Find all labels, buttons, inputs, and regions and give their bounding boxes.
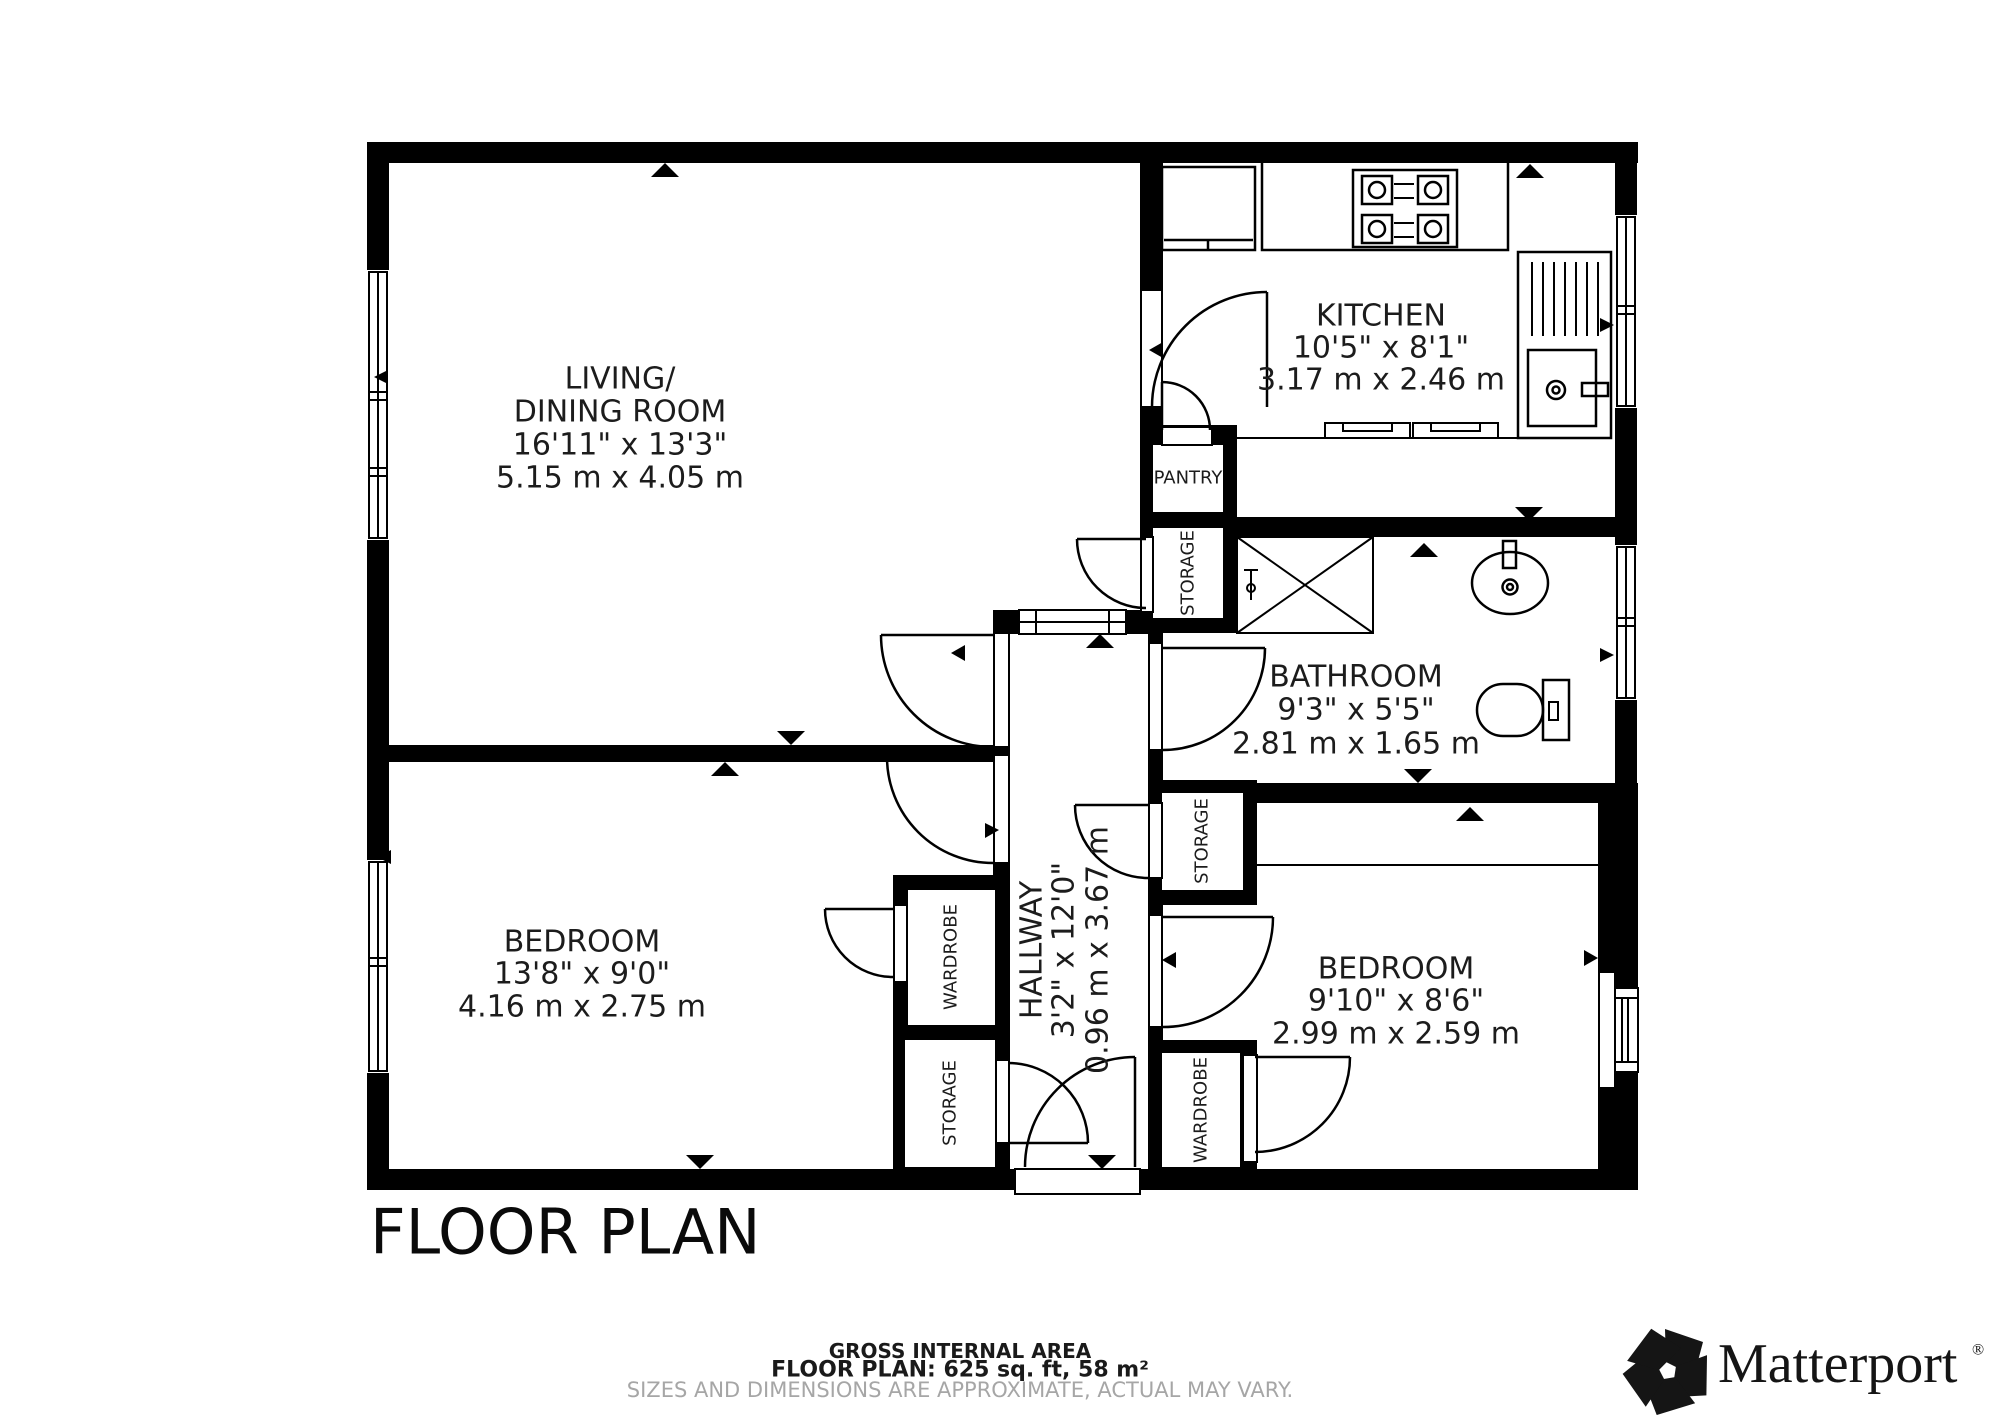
entrance-threshold xyxy=(1015,1169,1140,1194)
arrow-up-icon xyxy=(1516,164,1544,178)
hallway-imperial: 3'2" x 12'0" xyxy=(1047,862,1082,1038)
matterport-pinwheel-icon xyxy=(1615,1325,1719,1415)
hallway-metric: 0.96 m x 3.67 m xyxy=(1081,826,1116,1074)
arrow-up-icon xyxy=(1456,807,1484,821)
arrow-down-icon xyxy=(777,731,805,745)
arrow-down-icon xyxy=(686,1155,714,1169)
disclaimer-text: SIZES AND DIMENSIONS ARE APPROXIMATE, AC… xyxy=(627,1378,1293,1402)
door-pantry xyxy=(1162,382,1210,430)
window-bathroom xyxy=(1615,545,1637,700)
wardrobe-left-label: WARDROBE xyxy=(941,904,962,1010)
registered-mark: ® xyxy=(1972,1342,1984,1359)
shower-icon xyxy=(1237,537,1373,633)
living-room-label: LIVING/ DINING ROOM 16'11" x 13'3" 5.15 … xyxy=(496,362,744,496)
floor-plan-canvas: LIVING/ DINING ROOM 16'11" x 13'3" 5.15 … xyxy=(0,0,2000,1415)
arrow-up-icon xyxy=(651,163,679,177)
floor-plan-page: LIVING/ DINING ROOM 16'11" x 13'3" 5.15 … xyxy=(0,0,2000,1415)
kitchen-label: KITCHEN 10'5" x 8'1" 3.17 m x 2.46 m xyxy=(1257,299,1505,398)
door-bedroom-right xyxy=(1163,917,1273,1027)
arrow-right-icon xyxy=(1584,950,1598,966)
arrow-left-icon xyxy=(1162,952,1176,968)
storage-mid-label: STORAGE xyxy=(1192,798,1213,884)
window-kitchen xyxy=(1615,215,1637,408)
hallway-name: HALLWAY xyxy=(1015,880,1050,1019)
pantry-label: PANTRY xyxy=(1154,468,1224,489)
arrow-down-icon xyxy=(1088,1155,1116,1169)
kitchen-imperial: 10'5" x 8'1" xyxy=(1293,331,1469,366)
bathroom-metric: 2.81 m x 1.65 m xyxy=(1232,727,1480,762)
window-bedroom-right xyxy=(1599,972,1638,1088)
hallway-transom-window xyxy=(1019,610,1126,634)
kitchen-metric: 3.17 m x 2.46 m xyxy=(1257,363,1505,398)
arrow-left-icon xyxy=(951,645,965,661)
door-wardrobe-right xyxy=(1255,1057,1350,1152)
kitchen-name: KITCHEN xyxy=(1316,299,1446,334)
brand-name: Matterport xyxy=(1718,1333,1958,1395)
door-storage-upper xyxy=(1077,539,1146,608)
living-room-name: LIVING/ xyxy=(565,362,677,397)
storage-lower-label: STORAGE xyxy=(940,1060,961,1146)
bedroom-left-name: BEDROOM xyxy=(504,925,661,960)
door-living-room xyxy=(881,635,993,747)
bathroom-name: BATHROOM xyxy=(1269,660,1443,695)
bedroom-right-imperial: 9'10" x 8'6" xyxy=(1308,984,1484,1019)
bedroom-right-name: BEDROOM xyxy=(1318,952,1475,987)
bathroom-imperial: 9'3" x 5'5" xyxy=(1277,693,1434,728)
door-wardrobe-left xyxy=(825,909,893,977)
toilet-icon xyxy=(1477,680,1569,740)
storage-upper-label: STORAGE xyxy=(1178,530,1199,616)
bathroom-sink-icon xyxy=(1472,541,1548,614)
kitchen-sink-icon xyxy=(1518,252,1611,438)
bedroom-left-label: BEDROOM 13'8" x 9'0" 4.16 m x 2.75 m xyxy=(458,925,706,1025)
bedroom-left-metric: 4.16 m x 2.75 m xyxy=(458,990,706,1025)
bedroom-right-metric: 2.99 m x 2.59 m xyxy=(1272,1017,1520,1052)
window-living xyxy=(367,270,389,540)
stove-icon xyxy=(1353,170,1457,247)
arrow-up-icon xyxy=(711,762,739,776)
bathroom-label: BATHROOM 9'3" x 5'5" 2.81 m x 1.65 m xyxy=(1232,660,1480,762)
arrow-up-icon xyxy=(1410,543,1438,557)
door-bedroom-left xyxy=(887,757,993,863)
brand-logo: Matterport ® xyxy=(1615,1325,1984,1415)
bedroom-left-imperial: 13'8" x 9'0" xyxy=(494,957,670,992)
wardrobe-right-label: WARDROBE xyxy=(1191,1057,1212,1163)
footer: GROSS INTERNAL AREA FLOOR PLAN: 625 sq. … xyxy=(627,1339,1293,1402)
living-room-imperial: 16'11" x 13'3" xyxy=(513,428,728,463)
bedroom-right-label: BEDROOM 9'10" x 8'6" 2.99 m x 2.59 m xyxy=(1272,952,1520,1052)
hallway-label: HALLWAY 3'2" x 12'0" 0.96 m x 3.67 m xyxy=(1015,826,1116,1074)
living-room-name2: DINING ROOM xyxy=(514,395,726,430)
page-title: FLOOR PLAN xyxy=(370,1196,761,1269)
living-room-metric: 5.15 m x 4.05 m xyxy=(496,461,744,496)
arrow-right-icon xyxy=(1600,648,1614,662)
door-kitchen xyxy=(1152,292,1267,407)
kitchen-appliances-icon xyxy=(1237,423,1518,438)
window-bedroom-left xyxy=(367,860,389,1073)
arrow-down-icon xyxy=(1404,769,1432,783)
arrow-up-icon xyxy=(1086,634,1114,648)
